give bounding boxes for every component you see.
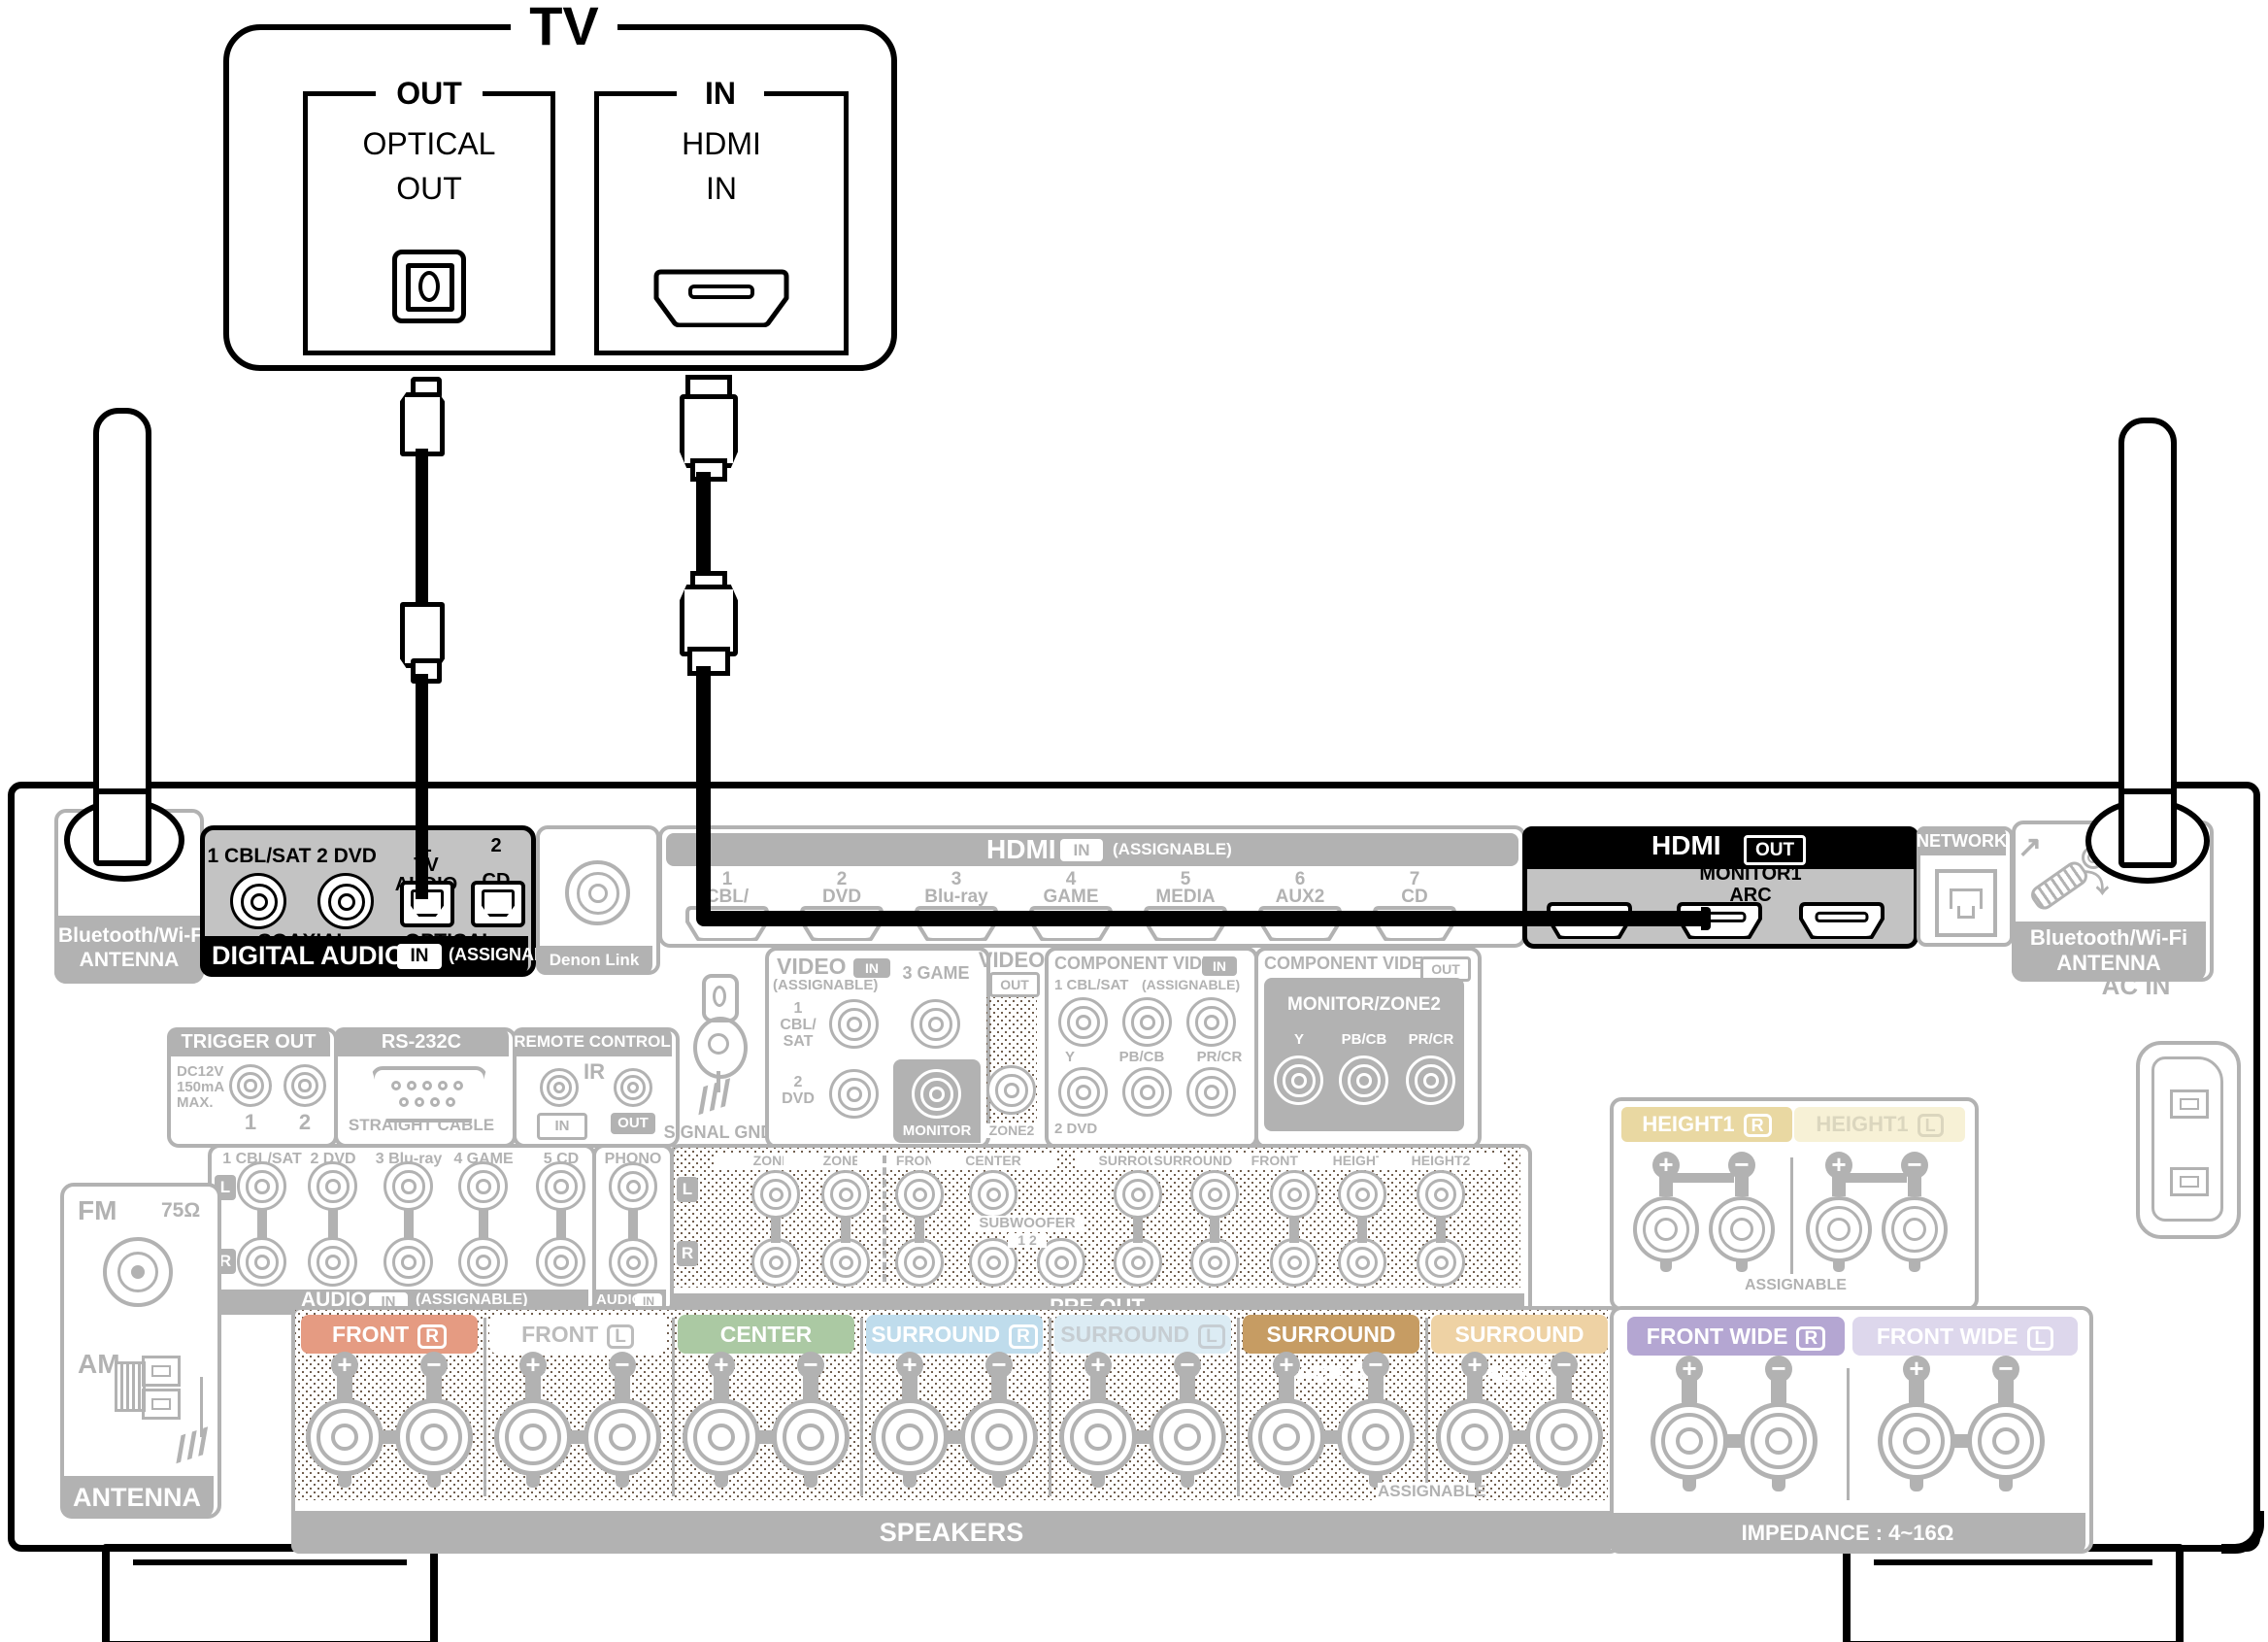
wifi-antenna-right[interactable] <box>2118 418 2177 868</box>
pre-out-col-height2: HEIGHT2 <box>1379 1154 1503 1168</box>
optical-port-icon[interactable] <box>392 250 466 323</box>
optical-jack-cd[interactable] <box>471 881 525 927</box>
jack <box>519 1424 547 1451</box>
jack <box>1654 1218 1678 1241</box>
impedance-banner: IMPEDANCE : 4~16Ω <box>1610 1513 2085 1554</box>
connection-diagram: TV OUT OPTICAL OUT IN HDMI IN <box>0 0 2268 1642</box>
jack <box>1356 1073 1372 1089</box>
shape <box>1909 1258 1920 1272</box>
shape <box>1237 1318 1240 1496</box>
speaker-label-height1-r: HEIGHT1R <box>1621 1107 1792 1142</box>
ac-inlet[interactable] <box>2136 1041 2241 1239</box>
jack <box>338 893 355 911</box>
jack <box>415 1097 424 1107</box>
component-in-assignable: (ASSIGNABLE) <box>1142 978 1240 992</box>
ground-icon <box>175 1426 217 1467</box>
jack <box>839 1256 853 1270</box>
hdmi-out-section: HDMIOUTMONITOR1ARC <box>1522 826 1918 949</box>
jack <box>1131 1188 1146 1202</box>
speaker-label-surround-l: SURROUNDL <box>1054 1315 1231 1354</box>
video-out-section: VIDEOOUTZONE2 <box>984 947 1039 1141</box>
jack <box>986 1188 1001 1202</box>
height1-assignable: ASSIGNABLE <box>1745 1278 1838 1294</box>
ac-in-label: AC IN <box>1942 973 2268 999</box>
jack <box>985 1424 1013 1451</box>
channel-box: L <box>2027 1326 2054 1351</box>
network-section: NETWORK <box>1917 826 2014 947</box>
jack <box>626 1256 641 1270</box>
shape <box>151 1398 171 1410</box>
hdmi-plug-at-receiver <box>1701 907 1711 930</box>
shape <box>1957 906 1975 919</box>
shape <box>1847 1368 1850 1500</box>
component-in-dvd-label: 2 DVD <box>1054 1122 1097 1137</box>
jack <box>847 1017 862 1032</box>
shape <box>187 1430 197 1460</box>
am-label: AM <box>78 1350 120 1378</box>
jack <box>626 1180 641 1194</box>
tv-optical-group-title: OUT <box>376 77 483 111</box>
jack <box>1903 1218 1926 1241</box>
fm-label: FM <box>78 1196 117 1224</box>
jack <box>609 1424 636 1451</box>
hdmi-port-icon[interactable] <box>653 269 789 327</box>
channel-box: L <box>1198 1324 1225 1349</box>
hdmi-plug-body <box>680 585 738 656</box>
pre-out-row-R: R <box>677 1241 698 1266</box>
jack <box>325 1255 341 1270</box>
pre-out-col-center: CENTER <box>931 1154 1055 1168</box>
speaker-label-front-r: FRONTR <box>301 1315 478 1354</box>
jack <box>708 1424 735 1451</box>
shape <box>696 666 711 919</box>
speaker-label-center: CENTER <box>678 1315 854 1354</box>
jack <box>325 1179 341 1194</box>
shape <box>416 449 428 606</box>
jack <box>1084 1424 1112 1451</box>
jack <box>1204 1015 1219 1030</box>
digital-audio-banner-title: DIGITAL AUDIO <box>212 942 405 969</box>
jack <box>1287 1188 1302 1202</box>
subwoofer-label: SUBWOOFER <box>971 1216 1084 1231</box>
jack <box>1076 1085 1091 1100</box>
jack <box>1054 1256 1069 1270</box>
jack <box>1903 1427 1930 1455</box>
jack <box>769 1188 784 1202</box>
jack <box>1208 1256 1222 1270</box>
shape <box>1659 1177 1673 1196</box>
fm-ohm-label: 75Ω <box>161 1200 200 1222</box>
ac-prong-slot <box>2170 1167 2209 1196</box>
power-cord-curl <box>2221 1511 2264 1554</box>
jack <box>1140 1085 1155 1100</box>
phono-section: PHONOAUDIOIN <box>592 1144 674 1315</box>
jack <box>298 1079 311 1091</box>
shape <box>771 1216 781 1243</box>
video-monitor-box: MONITOR <box>893 1059 981 1143</box>
jack <box>131 1265 145 1279</box>
shape <box>1790 1157 1793 1274</box>
jack <box>839 1188 853 1202</box>
wifi-antenna-left[interactable] <box>93 408 151 866</box>
shape <box>198 1426 208 1457</box>
shape <box>2151 1056 2223 1222</box>
jack <box>476 1255 491 1270</box>
shape <box>2027 858 2091 914</box>
speaker-label-front-wide-r: FRONT WIDER <box>1627 1317 1845 1356</box>
jack <box>1131 1256 1146 1270</box>
shape <box>1133 1216 1143 1243</box>
channel-box: L <box>1918 1114 1944 1137</box>
speaker-label-front-wide-l: FRONT WIDEL <box>1852 1317 2078 1356</box>
jack <box>553 1179 569 1194</box>
jack <box>254 1179 270 1194</box>
optical-plug-body <box>400 392 445 456</box>
channel-box: R <box>417 1324 447 1349</box>
tv-optical-group: OUT OPTICAL OUT <box>303 91 555 355</box>
speaker-label-height1-l: HEIGHT1L <box>1794 1107 1965 1142</box>
component-video-in-section: COMPONENT VIDEOIN1 CBL/SAT(ASSIGNABLE)YP… <box>1045 947 1258 1149</box>
digital-audio-in-tag: IN <box>397 944 442 969</box>
jack <box>1730 1218 1753 1241</box>
shape <box>1660 1258 1672 1272</box>
speakers-section: FRONTR+−FRONTL+−CENTER+−SURROUNDR+−SURRO… <box>291 1306 1619 1554</box>
pre-out-section: ZONE2ZONE3FRONTCENTERSURROUNDSURROUND BA… <box>670 1144 1532 1321</box>
antenna-arrow-icon: ↗ <box>2018 832 2042 863</box>
shape <box>142 1389 181 1420</box>
jack <box>797 1424 824 1451</box>
shape <box>1832 1177 1846 1196</box>
channel-box: R <box>1796 1326 1825 1351</box>
rs232c-section: RS-232CSTRAIGHT CABLE <box>334 1027 517 1148</box>
receiver-foot-left <box>102 1544 438 1642</box>
shape <box>142 1356 181 1387</box>
jack <box>896 1424 923 1451</box>
tv-hdmi-group: IN HDMI IN <box>594 91 849 355</box>
speaker-label-surround-back-l: SURROUND BACKL <box>1431 1315 1608 1354</box>
jack <box>331 1424 358 1451</box>
tv-title: TV <box>511 0 617 55</box>
shape <box>176 1434 185 1464</box>
speaker-label-surround-r: SURROUNDR <box>866 1315 1043 1354</box>
pre-out-hatch <box>674 1148 1520 1288</box>
jack <box>420 1424 448 1451</box>
jack <box>399 1097 409 1107</box>
subwoofer-nums: 1 2 <box>1008 1233 1047 1248</box>
speaker-label-front-l: FRONTL <box>489 1315 666 1354</box>
jack <box>913 1188 927 1202</box>
shape <box>1357 1216 1367 1243</box>
jack <box>1355 1188 1370 1202</box>
signal-gnd-group: SIGNAL GND <box>670 966 767 1141</box>
component-out-monitor-label: MONITOR/ZONE2 <box>1170 995 1558 1015</box>
speaker-label-surround-back-r: SURROUND BACKR <box>1243 1315 1419 1354</box>
hdmi-out-port-b[interactable] <box>1799 902 1884 939</box>
front-wide-section: FRONT WIDERFRONT WIDEL+−+−IMPEDANCE : 4~… <box>1610 1306 2093 1554</box>
denon-link-label: Denon Link HD <box>536 946 652 975</box>
antenna-seam <box>2121 788 2174 794</box>
component-out-monitor-box: MONITOR/ZONE2YPB/CBPR/CR <box>1264 978 1464 1131</box>
hdmi-in-title: HDMI <box>986 835 1056 863</box>
video-out-tag: OUT <box>989 972 1040 997</box>
tv-hdmi-label: HDMI <box>599 127 844 161</box>
tv-hdmi-label2: IN <box>599 172 844 206</box>
jack <box>401 1255 417 1270</box>
component-out-prcr-label: PR/CR <box>1237 1032 1625 1048</box>
jack <box>553 1082 565 1093</box>
shape <box>484 1318 486 1496</box>
jack <box>401 1179 417 1194</box>
jack <box>1676 1427 1703 1455</box>
rs232c-title: RS-232C <box>334 1027 509 1056</box>
shape <box>2180 1176 2199 1188</box>
antenna-section: FM75ΩAMANTENNA <box>60 1183 221 1519</box>
jack <box>986 1256 1001 1270</box>
jack <box>254 1255 270 1270</box>
channel-box: R <box>1744 1114 1772 1137</box>
pre-out-row-L: L <box>677 1177 698 1202</box>
shape <box>841 1216 850 1243</box>
hdmi-in-section: HDMIIN(ASSIGNABLE)1CBL/ SAT2DVD3Blu-ray4… <box>658 825 1526 948</box>
jack <box>847 1087 862 1102</box>
shape <box>1425 1318 1428 1496</box>
pre-out-divider <box>883 1156 886 1282</box>
speakers-assignable: ASSIGNABLE <box>1378 1483 1475 1500</box>
shape <box>1845 1173 1907 1183</box>
jack <box>1208 1188 1222 1202</box>
jack <box>1140 1015 1155 1030</box>
digital-audio-banner: DIGITAL AUDIOIN(ASSIGNABLE) <box>200 936 528 977</box>
shape <box>1436 1216 1446 1243</box>
video-out-zone2-label: ZONE2 <box>983 1123 1041 1138</box>
tv-optical-label: OPTICAL <box>308 127 550 161</box>
ac-prong-slot <box>2170 1089 2209 1119</box>
digital-audio-section: 1 CBL/SAT2 DVD1TVAUDIO2CDCOAXIALOPTICALD… <box>200 825 536 977</box>
jack <box>1423 1073 1439 1089</box>
am-terminal-icon[interactable] <box>115 1354 196 1416</box>
jack <box>928 1017 944 1032</box>
tv-optical-label2: OUT <box>308 172 550 206</box>
jack <box>1434 1256 1449 1270</box>
jack <box>1204 1085 1219 1100</box>
hdmi-in-assignable: (ASSIGNABLE) <box>1113 841 1232 858</box>
jack <box>430 1097 440 1107</box>
audio-in-section: 1 CBL/SAT2 DVD3 Blu-ray4 GAME5 CDLRAUDIO… <box>208 1144 596 1315</box>
jack <box>769 1256 784 1270</box>
component-in-cblsat-label: 1 CBL/SAT <box>1054 978 1128 993</box>
network-label: NETWORK <box>1917 826 2006 855</box>
jack <box>1004 1083 1019 1098</box>
shape <box>1210 1216 1219 1243</box>
jack <box>476 1179 491 1194</box>
component-in-tag: IN <box>1202 956 1237 976</box>
shape <box>915 1216 924 1243</box>
trigger-note: DC12V 150mA MAX. <box>177 1064 224 1110</box>
shape <box>1735 1177 1749 1196</box>
jack <box>1434 1188 1449 1202</box>
hdmi-out-tag: OUT <box>1744 835 1806 865</box>
hdmi-in-banner: HDMIIN(ASSIGNABLE) <box>666 833 1518 866</box>
shape <box>1833 1258 1845 1272</box>
hdmi-in-tag: IN <box>1060 839 1103 861</box>
shape <box>1908 1177 1921 1196</box>
shape <box>151 1365 171 1377</box>
channel-box: R <box>1009 1324 1038 1349</box>
shape <box>1672 1173 1734 1183</box>
jack <box>913 1256 927 1270</box>
height1-section: HEIGHT1RHEIGHT1L+−+−ASSIGNABLE <box>1610 1097 1979 1311</box>
shape <box>416 674 428 899</box>
hdmi-cable-run <box>696 911 1709 926</box>
jack <box>446 1097 455 1107</box>
shape <box>1049 1318 1051 1496</box>
rj45-port-icon[interactable] <box>1935 869 1997 937</box>
hdmi-plug-body <box>680 394 738 468</box>
tv-hdmi-group-title: IN <box>677 77 764 111</box>
jack <box>929 1087 945 1102</box>
jack <box>1461 1424 1488 1451</box>
trigger-out-title: TRIGGER OUT <box>167 1027 330 1056</box>
jack <box>1273 1424 1300 1451</box>
hdmi-out-monitor1-label: MONITOR1 <box>1556 864 1945 885</box>
jack <box>1992 1427 2019 1455</box>
jack <box>250 893 268 911</box>
shape <box>1736 1258 1748 1272</box>
jack <box>244 1079 256 1091</box>
speakers-banner: SPEAKERS <box>291 1511 1612 1554</box>
video-in-section: VIDEOIN(ASSIGNABLE)3 GAME1 CBL/ SAT2 DVD… <box>765 947 990 1149</box>
antenna-turn-arrow-icon: ⤵ <box>2084 871 2109 897</box>
jack <box>1076 1015 1091 1030</box>
antenna-banner: ANTENNA <box>60 1476 214 1519</box>
jack <box>1355 1256 1370 1270</box>
jack <box>1174 1424 1201 1451</box>
component-video-out-section: COMPONENT VIDEOOUTMONITOR/ZONE2YPB/CBPR/… <box>1254 947 1482 1149</box>
shape <box>696 472 711 573</box>
antenna-seam <box>96 788 149 794</box>
jack <box>1551 1424 1578 1451</box>
hdmi-out-title: HDMI <box>1651 831 1721 859</box>
jack <box>1827 1218 1851 1241</box>
jack <box>1291 1073 1307 1089</box>
component-out-title: COMPONENT VIDEO <box>1264 955 1437 973</box>
jack <box>1362 1424 1389 1451</box>
shape <box>860 1318 863 1496</box>
jack <box>1287 1256 1302 1270</box>
shape <box>1289 1216 1299 1243</box>
tv-box: TV OUT OPTICAL OUT IN HDMI IN <box>223 24 897 371</box>
channel-box: L <box>607 1324 634 1349</box>
jack <box>553 1255 569 1270</box>
jack <box>1765 1427 1792 1455</box>
shape <box>672 1318 675 1496</box>
shape <box>2180 1098 2199 1110</box>
shape <box>482 889 515 917</box>
receiver-foot-right <box>1843 1544 2184 1642</box>
